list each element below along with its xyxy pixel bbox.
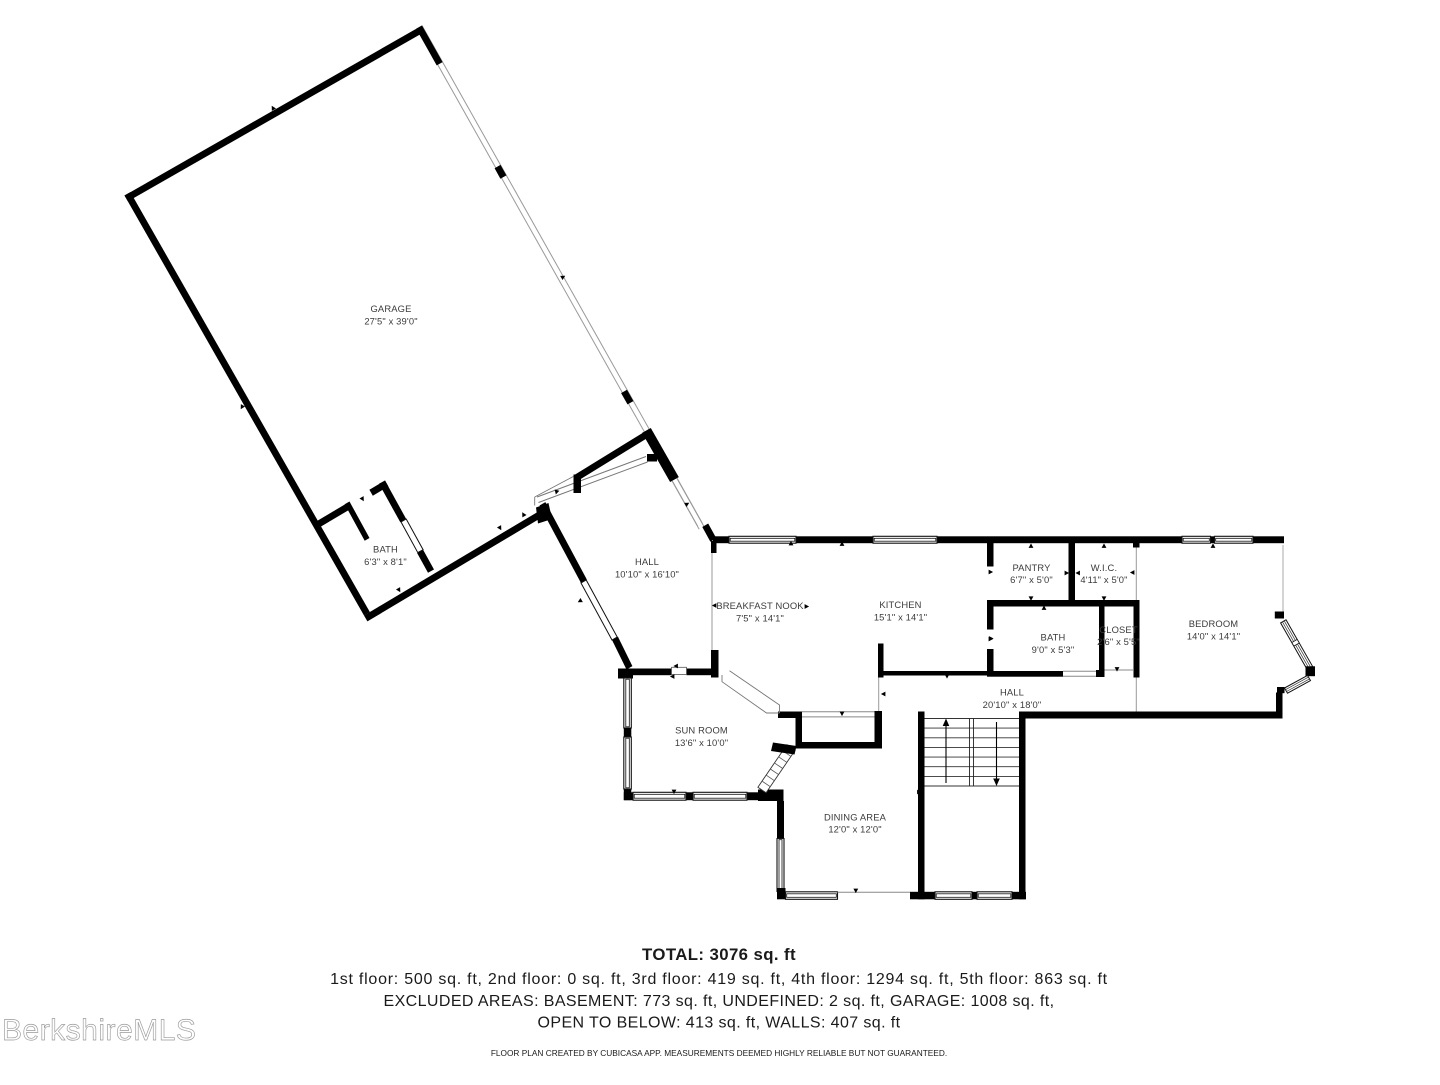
svg-text:BEDROOM: BEDROOM xyxy=(1189,618,1239,629)
svg-text:OPEN TO BELOW: 413 sq. ft, WAL: OPEN TO BELOW: 413 sq. ft, WALLS: 407 sq… xyxy=(538,1015,901,1032)
svg-text:HALL: HALL xyxy=(1000,687,1024,698)
svg-text:HALL: HALL xyxy=(635,556,659,567)
svg-text:TOTAL: 3076 sq. ft: TOTAL: 3076 sq. ft xyxy=(642,945,796,964)
svg-text:12'0" x 12'0": 12'0" x 12'0" xyxy=(828,824,881,835)
svg-text:BATH: BATH xyxy=(1041,632,1066,643)
svg-text:DINING AREA: DINING AREA xyxy=(824,811,887,822)
svg-text:10'10" x 16'10": 10'10" x 16'10" xyxy=(615,568,679,579)
svg-text:27'5" x 39'0": 27'5" x 39'0" xyxy=(364,315,417,326)
svg-text:14'0" x 14'1": 14'0" x 14'1" xyxy=(1187,630,1240,641)
svg-text:EXCLUDED AREAS: BASEMENT: 773: EXCLUDED AREAS: BASEMENT: 773 sq. ft, UN… xyxy=(384,993,1055,1010)
svg-text:9'0" x 5'3": 9'0" x 5'3" xyxy=(1032,644,1075,655)
svg-text:1st floor: 500 sq. ft, 2nd flo: 1st floor: 500 sq. ft, 2nd floor: 0 sq. … xyxy=(330,971,1108,988)
svg-text:6'3" x 8'1": 6'3" x 8'1" xyxy=(364,556,407,567)
svg-text:BerkshireMLS: BerkshireMLS xyxy=(2,1014,196,1047)
svg-text:CLOSET: CLOSET xyxy=(1099,624,1138,635)
svg-text:4'11" x 5'0": 4'11" x 5'0" xyxy=(1080,574,1127,585)
svg-text:6'7" x 5'0": 6'7" x 5'0" xyxy=(1010,574,1053,585)
svg-text:W.I.C.: W.I.C. xyxy=(1091,562,1117,573)
svg-text:20'10" x 18'0": 20'10" x 18'0" xyxy=(983,699,1042,710)
svg-text:2'6" x 5'5": 2'6" x 5'5" xyxy=(1097,636,1140,647)
svg-text:15'1" x 14'1": 15'1" x 14'1" xyxy=(874,611,927,622)
svg-text:BATH: BATH xyxy=(373,544,398,555)
svg-text:SUN ROOM: SUN ROOM xyxy=(675,725,728,736)
svg-text:7'5" x 14'1": 7'5" x 14'1" xyxy=(736,612,784,623)
svg-text:PANTRY: PANTRY xyxy=(1012,562,1051,573)
svg-text:GARAGE: GARAGE xyxy=(370,303,411,314)
svg-text:13'6" x 10'0": 13'6" x 10'0" xyxy=(675,737,728,748)
svg-text:KITCHEN: KITCHEN xyxy=(879,599,921,610)
svg-text:BREAKFAST NOOK: BREAKFAST NOOK xyxy=(716,600,804,611)
svg-text:FLOOR PLAN CREATED BY CUBICASA: FLOOR PLAN CREATED BY CUBICASA APP. MEAS… xyxy=(491,1048,947,1058)
